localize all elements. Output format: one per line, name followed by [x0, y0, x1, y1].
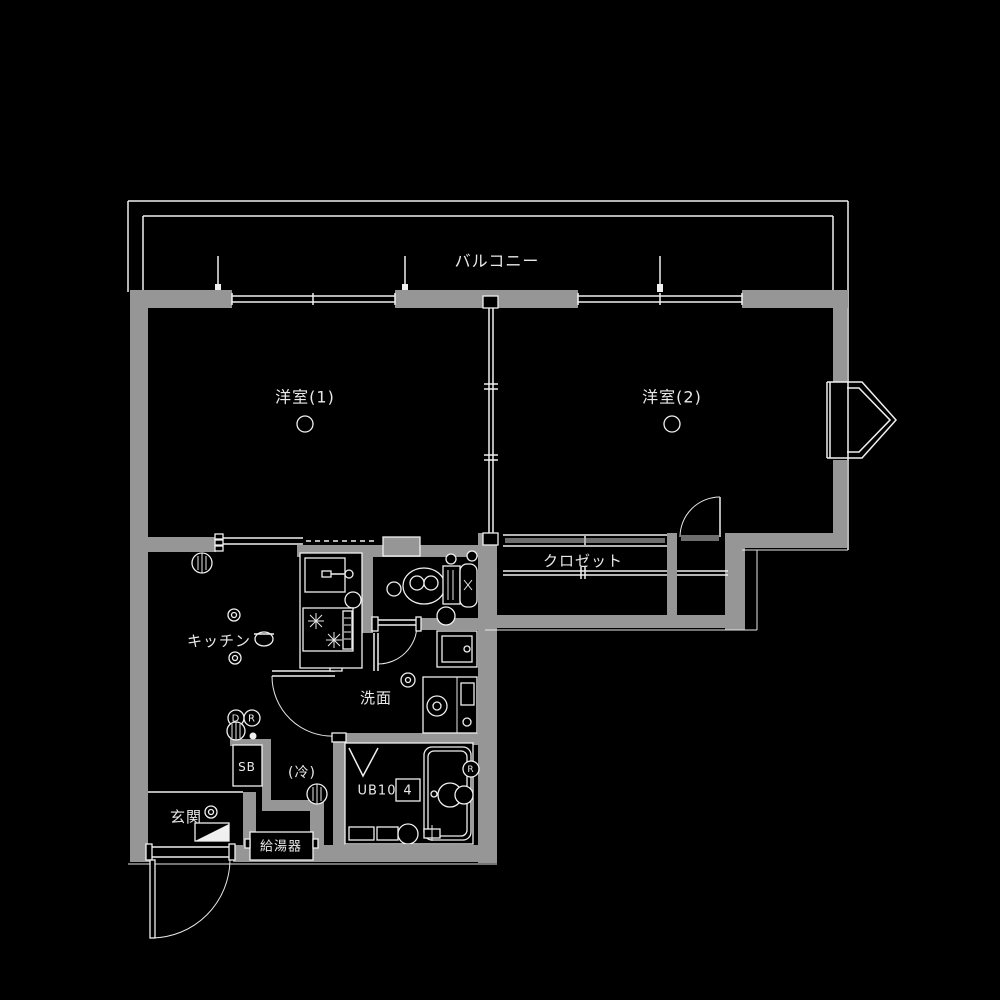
- label-western-room-1: 洋室(1): [275, 388, 335, 407]
- entrance-door: [146, 844, 235, 938]
- kitchen-stove: [303, 608, 353, 651]
- bathtub: [424, 747, 473, 840]
- kitchen-counter: [300, 553, 362, 668]
- label-refrigerator-space: (冷): [288, 765, 316, 781]
- label-washroom: 洗面: [360, 689, 392, 707]
- wall-room1-south-west: [148, 537, 216, 552]
- label-kitchen: キッチン: [187, 632, 251, 650]
- wall-closet-pillar: [667, 533, 677, 617]
- washing-machine-pan: [437, 631, 477, 667]
- toilet-bowl: [403, 568, 445, 604]
- door-kitchen-washroom: [272, 666, 346, 742]
- wall-sb-east: [262, 739, 271, 805]
- toilet-room: [387, 554, 477, 625]
- bath-r-label: R: [467, 765, 474, 775]
- meter-r-label: R: [248, 714, 256, 725]
- wall-top-3: [742, 290, 848, 308]
- wall-closet-south: [485, 615, 745, 628]
- closet-sliding-doors: [503, 535, 667, 546]
- meter-symbols: D R: [227, 710, 260, 740]
- pipe-space-symbol-top: [192, 553, 212, 573]
- label-unit-bath: UB10: [358, 784, 397, 799]
- wall-right-lower: [833, 460, 847, 533]
- vanity: [423, 677, 477, 733]
- label-entrance: 玄関: [170, 808, 202, 826]
- balcony-partition-ticks: [215, 256, 663, 292]
- label-closet: クロゼット: [543, 552, 623, 570]
- room1-ceiling-light: [297, 416, 313, 432]
- wall-southeast-top: [745, 533, 847, 548]
- wall-left: [130, 290, 148, 862]
- toilet-tank: [443, 554, 460, 604]
- partition-room1-room2: [483, 296, 498, 545]
- label-unit-bath-size: 4: [403, 784, 412, 799]
- bath-r-symbol: R: [463, 761, 479, 777]
- bay-window: [827, 382, 896, 458]
- door-room2: [680, 497, 720, 541]
- label-western-room-2: 洋室(2): [642, 388, 702, 407]
- floor-plan: D R: [0, 0, 1000, 1000]
- kitchen-downlight-1: [228, 609, 240, 621]
- room2-ceiling-light: [664, 416, 680, 432]
- washroom-fixtures: [401, 631, 477, 733]
- window-room2: [578, 293, 742, 305]
- kitchen-downlight-2: [229, 652, 241, 664]
- label-balcony: バルコニー: [455, 252, 540, 271]
- wall-right-upper: [833, 308, 847, 382]
- label-water-heater: 給湯器: [260, 840, 302, 855]
- toilet-handwash: [460, 564, 477, 607]
- label-shoe-box: SB: [238, 760, 256, 774]
- window-room1: [232, 293, 395, 305]
- toilet-drain: [437, 607, 455, 625]
- door-toilet: [372, 617, 421, 671]
- wall-east-column: [478, 533, 497, 863]
- floor-plan-canvas: D R: [0, 0, 1000, 1000]
- toilet-light: [387, 582, 401, 596]
- kitchen-pendant-light: [254, 632, 274, 646]
- entrance-light: [205, 806, 217, 818]
- washroom-light: [401, 673, 415, 687]
- wall-ub-west: [333, 745, 345, 845]
- pipe-space-symbol-alcove: [307, 784, 327, 804]
- wall-top-1: [130, 290, 232, 308]
- pipe-dot: [467, 551, 477, 561]
- duct-box: [383, 537, 420, 556]
